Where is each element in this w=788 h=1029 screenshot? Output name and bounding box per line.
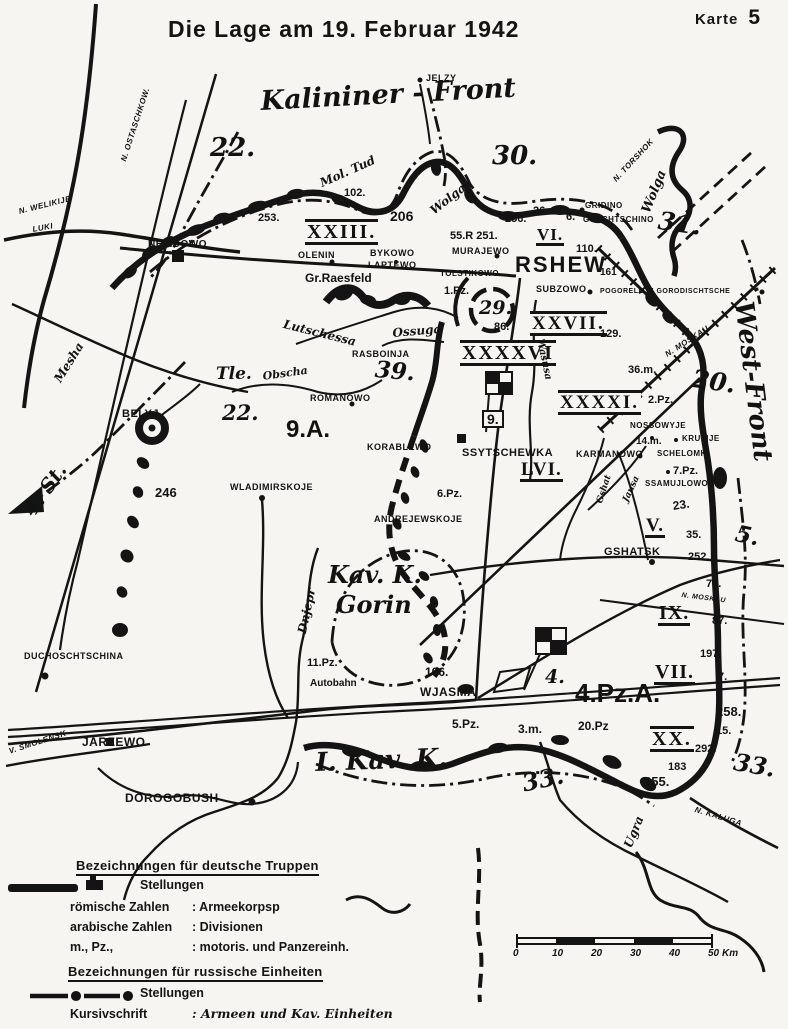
map-label-206: 206 — [390, 209, 413, 223]
map-label-autobahn: Autobahn — [310, 679, 357, 689]
map-label-22: 22. — [222, 402, 259, 423]
map-label-ssamujlowo: SSAMUJLOWO — [645, 480, 708, 488]
legend-value: : Divisionen — [192, 920, 263, 934]
legend-value: : Armeen und Kav. Einheiten — [192, 1006, 393, 1021]
map-label-romanowo: ROMANOWO — [310, 394, 371, 403]
map-label-subzowo: SUBZOWO — [536, 285, 587, 294]
map-label-14-m: 14.m. — [636, 437, 662, 447]
map-label-mol-tud: Mol. Tud — [318, 154, 377, 189]
map-label-wladimirskoje: WLADIMIRSKOJE — [230, 483, 313, 492]
karte-label: Karte — [695, 11, 738, 28]
map-label-gr-raesfeld: Gr.Raesfeld — [305, 272, 372, 284]
map-label-246: 246 — [155, 486, 177, 499]
map-label-258: 258. — [716, 705, 741, 718]
map-label-vi: VI. — [536, 226, 564, 246]
legend-term: arabische Zahlen — [70, 920, 192, 934]
map-label-nelidowo: NELIDOWO — [148, 240, 207, 250]
map-label-nossowyje: NOSSOWYJE — [630, 422, 686, 430]
map-label-102: 102. — [344, 188, 365, 199]
map-label-55-r-251: 55.R 251. — [450, 231, 498, 242]
map-label-lutschessa: Lutschessa — [282, 318, 357, 348]
map-label-183: 183 — [668, 762, 686, 773]
map-label-78: 78. — [706, 579, 721, 590]
map-label-4-st: 4. St. — [20, 460, 70, 519]
map-label-bykowo: BYKOWO — [370, 249, 415, 258]
map-label-2-pz: 2.Pz. — [648, 395, 673, 406]
map-sheet-number: Karte5 — [695, 6, 760, 30]
map-label-31: 31. — [657, 208, 704, 239]
map-label-4: 4. — [545, 668, 565, 687]
scale-tick-0: 0 — [513, 948, 519, 959]
map-label-197: 197. — [700, 649, 721, 660]
map-label-pogoreloje-gorodischtsche: POGORELOJE GORODISCHTSCHE — [600, 288, 730, 295]
map-label-gshat: Gshat — [596, 474, 614, 505]
legend-row-roman: römische Zahlen: Armeekorpsp — [70, 900, 280, 914]
map-label-36-m: 36.m. — [628, 365, 656, 376]
map-label-256: 256. — [505, 214, 526, 225]
map-label-106: 106. — [425, 666, 448, 678]
map-label-292: 292. — [695, 744, 716, 755]
map-label-laptewo: LAPTEWO — [368, 261, 417, 270]
map-label-253: 253. — [258, 213, 279, 224]
map-label-1-pz: 1.Pz. — [444, 286, 469, 297]
map-label-luki: LUKI — [32, 222, 54, 233]
map-label-30: 30. — [492, 143, 537, 169]
scale-tick-30: 30 — [630, 948, 641, 959]
map-label-20-pz: 20.Pz — [578, 720, 609, 732]
map-label-kav-k: Kav. K. — [328, 563, 422, 587]
page-title: Die Lage am 19. Februar 1942 — [168, 16, 519, 43]
map-label-mesha: Mesha — [52, 341, 86, 385]
map-label-129: 129. — [600, 329, 621, 340]
map-label-ssytschewka: SSYTSCHEWKA — [462, 448, 553, 459]
map-label-n-ostaschkow: n. OSTASCHKOW. — [120, 87, 151, 163]
map-label-11-pz: 11.Pz. — [307, 658, 338, 669]
map-label-tle: Tle. — [216, 366, 252, 383]
map-label-6-pz: 6.Pz. — [437, 489, 462, 500]
map-label-5-pz: 5.Pz. — [452, 718, 479, 730]
scale-tick-20: 20 — [591, 948, 602, 959]
map-label-9: 9. — [482, 410, 504, 428]
map-label-15: 15. — [716, 726, 731, 737]
map-label-7-pz: 7.Pz. — [673, 466, 698, 477]
legend-value: : motoris. und Panzereinh. — [192, 940, 349, 954]
legend-russian-title: Bezeichnungen für russische Einheiten — [68, 964, 323, 982]
map-label-duchoschtschina: DUCHOSCHTSCHINA — [24, 652, 124, 661]
map-label-35: 35. — [686, 530, 701, 541]
map-label-andrejewskoje: ANDREJEWSKOJE — [374, 515, 463, 524]
map-label-22: 22. — [210, 135, 255, 161]
legend-row-arabic: arabische Zahlen: Divisionen — [70, 920, 263, 934]
karte-number: 5 — [748, 6, 760, 29]
map-label-n-moskau: n. MOSKAU — [664, 325, 711, 359]
map-label-6: 6. — [566, 212, 575, 223]
map-label-33: 33. — [732, 750, 777, 781]
map-label-5: 5. — [733, 522, 761, 549]
map-label-252: 252. — [688, 552, 709, 563]
legend-german-title: Bezeichnungen für deutsche Truppen — [76, 858, 319, 876]
map-label-jausa: Jausa — [622, 475, 642, 504]
map-label-krutije: KRUTIJE — [682, 435, 720, 443]
legend-term: römische Zahlen — [70, 900, 192, 914]
map-label-i-kav-k: I. Kav. K. — [315, 745, 448, 776]
legend-german-stellungen: Stellungen — [140, 878, 204, 892]
map-label-33: 33. — [520, 763, 566, 795]
map-label-3-m: 3.m. — [518, 723, 542, 735]
map-label-obscha: Obscha — [262, 365, 308, 382]
map-label-rshew: RSHEW — [515, 254, 607, 276]
map-label-xxvii: XXVII. — [530, 311, 607, 336]
map-label-west-front: West-Front — [730, 300, 775, 463]
legend-russian-stellungen: Stellungen — [140, 986, 204, 1000]
map-label-belyj: BELYJ — [122, 409, 159, 420]
legend-value: : Armeekorpsp — [192, 900, 280, 914]
map-label-v: V. — [645, 516, 665, 538]
map-label-jarzewo: JARZEWO — [82, 736, 146, 748]
map-label-korablewo: KORABLEWO — [367, 443, 432, 452]
legend-row-cursive: Kursivschrift: Armeen und Kav. Einheiten — [70, 1006, 393, 1021]
map-label-23: 23. — [672, 498, 690, 512]
map-label-87: 87. — [712, 616, 727, 627]
scale-tick-50: 50 — [708, 948, 719, 959]
map-label-86: 86. — [494, 322, 509, 333]
map-label-20: 20. — [691, 366, 738, 397]
map-label-ossuga: Ossuga — [392, 323, 442, 339]
map-label-39: 39. — [374, 358, 416, 384]
legend-term: m., Pz., — [70, 940, 192, 954]
map-label-olenin: OLENIN — [298, 251, 335, 260]
map-label-gshatsk: GSHATSK — [604, 547, 660, 558]
map-label-kalininer-front: Kalininer - Front — [260, 75, 517, 115]
scale-tick-10: 10 — [552, 948, 563, 959]
map-label-wolga: Wolga — [428, 182, 468, 217]
map-label-guschtschino: GUSCHTSCHINO — [583, 216, 654, 224]
map-label-4-pz-a: 4.Pz.A. — [575, 680, 660, 706]
map-label-255: 255. — [644, 775, 669, 788]
legend-term: Kursivschrift — [70, 1007, 192, 1021]
map-label-xxxxi: XXXXI. — [558, 390, 641, 415]
map-label-26: 26. — [533, 206, 548, 217]
map-label-7: 7. — [718, 672, 727, 683]
scale-tick-40: 40 — [669, 948, 680, 959]
map-label-9-a: 9.A. — [286, 418, 330, 442]
map-label-n-kaluga: n. KALUGA — [694, 806, 743, 828]
map-label-jelzy: JELZY — [426, 74, 457, 83]
map-label-tolstikowo: TOLSTIKOWO — [440, 270, 499, 278]
map-label-gorin: Gorin — [336, 593, 412, 617]
legend-row-motorized: m., Pz.,: motoris. und Panzereinh. — [70, 940, 349, 954]
map-label-ix: IX. — [658, 603, 690, 626]
map-label-wjasma: WJASMA — [420, 686, 476, 698]
map-label-murajewo: MURAJEWO — [452, 247, 510, 256]
map-label-161: 161 — [600, 268, 617, 278]
map-label-gridino: GRIDINO — [585, 202, 623, 210]
map-label-schelomki: SCHELOMKI — [657, 450, 710, 458]
map-label-dorogobush: DOROGOBUSH — [125, 792, 219, 804]
map-label-dnjepr: Dnjepr — [296, 587, 317, 634]
map-label-29: 29. — [479, 299, 512, 318]
map-label-xx: XX. — [650, 726, 694, 752]
map-label-karmanowo: KARMANOWO — [576, 450, 643, 459]
map-label-xxiii: XXIII. — [305, 219, 378, 245]
map-label-v-smolensk: v. SMOLENSK — [8, 729, 67, 755]
map-label-lvi: LVI. — [520, 460, 563, 482]
map-page: Karte5 Die Lage am 19. Februar 1942 — [0, 0, 788, 1029]
map-label-ugra: Ugra — [622, 814, 645, 849]
map-label-n-welikije: n. WELIKIJE — [18, 195, 72, 216]
scale-unit: Km — [722, 948, 738, 959]
map-label-n-torshok: n. TORSHOK — [612, 138, 655, 184]
